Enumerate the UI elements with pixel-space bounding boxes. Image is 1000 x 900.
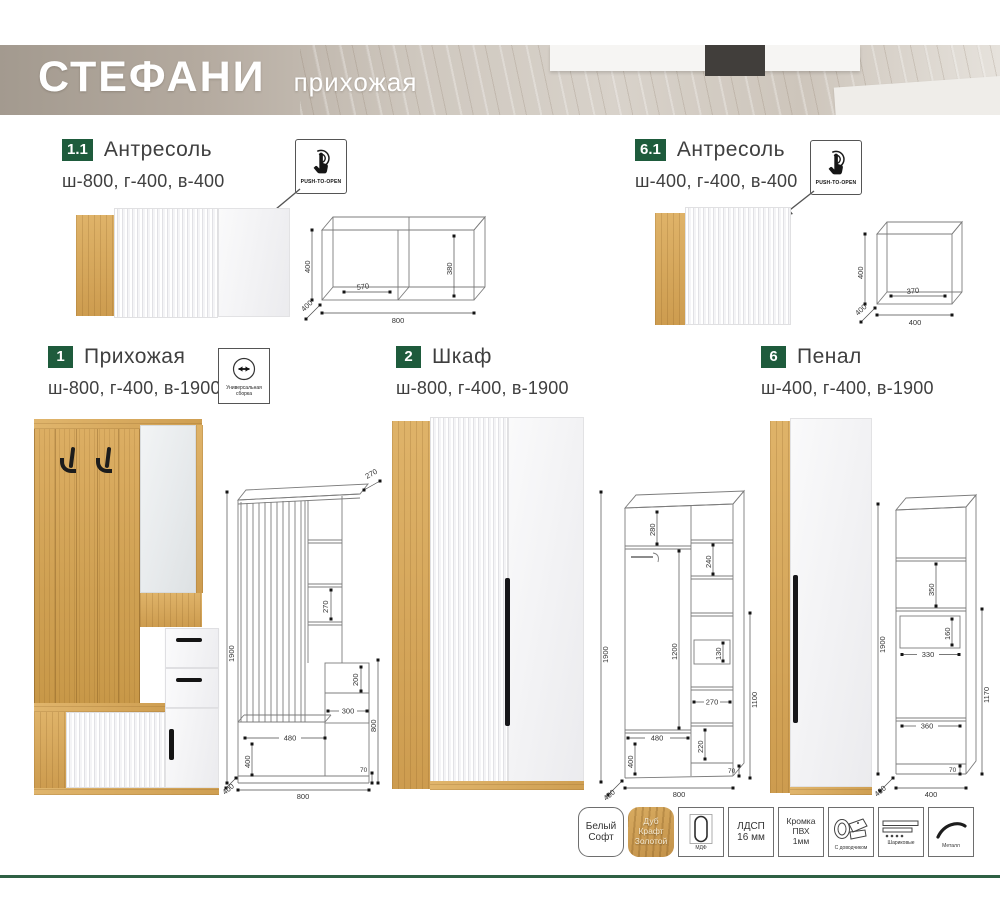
push-to-open-box-6-1: PUSH-TO-OPEN [810, 140, 862, 195]
dim-drawer-height: 160 [943, 627, 952, 640]
dim-shelf-width: 360 [921, 722, 934, 731]
item-6-dims: ш-400, г-400, в-1900 [761, 378, 934, 399]
dim-total-height: 1900 [601, 646, 610, 663]
material-label: Металл [942, 844, 960, 849]
dimensions: 400 380 570 800 400 [299, 229, 475, 326]
outline [322, 217, 485, 300]
dim-plinth: 70 [728, 768, 736, 775]
coat-hook [94, 447, 114, 473]
material-metal-handles: Металл [928, 807, 974, 857]
door-handle [169, 729, 174, 760]
mirror [140, 425, 196, 593]
bench-top [34, 703, 165, 712]
universal-assembly-box: Универсальная сборка [218, 348, 270, 404]
item-1-1-badge: 1.1 [62, 139, 93, 161]
fluted-door [430, 417, 508, 784]
item-2-dims: ш-800, г-400, в-1900 [396, 378, 569, 399]
dim-width: 800 [673, 790, 686, 799]
mdf-profile-icon [688, 813, 714, 845]
drawer-handle [176, 678, 202, 682]
dim-drawer-height: 200 [351, 673, 360, 686]
dimensions: 1900 350 160 330 1170 360 70 400 400 [873, 503, 991, 800]
dim-inner-height: 380 [445, 262, 454, 275]
dim-bench-height: 400 [243, 755, 252, 768]
double-arrow-icon [229, 355, 259, 385]
wardrobe-drawing: 1900 280 1200 240 130 270 220 400 480 [595, 468, 767, 808]
antresol-800-drawing: 400 380 570 800 400 [302, 200, 492, 330]
item-1-label: 1 Прихожая ш-800, г-400, в-1900 [48, 345, 221, 399]
dim-width: 400 [909, 318, 922, 327]
catalog-page: СТЕФАНИ прихожая 1.1 Антресоль ш-800, г-… [0, 0, 1000, 900]
drawer [165, 668, 219, 708]
door-handle [793, 575, 798, 723]
page-title: СТЕФАНИ прихожая [38, 53, 417, 102]
hook-panel [34, 429, 140, 703]
material-label: Белый Софт [586, 821, 616, 844]
item-6-1-badge: 6.1 [635, 139, 666, 161]
dim-height: 400 [303, 260, 312, 273]
open-niche [140, 593, 202, 627]
material-label: Дуб Крафт Золотой [635, 817, 668, 846]
dim-total-height: 1900 [878, 636, 887, 653]
hinge-icon [831, 813, 871, 845]
dimensions: 400 370 400 400 [853, 233, 953, 328]
material-label: С доводчиком [835, 846, 868, 851]
material-label: ЛДСП 16 мм [737, 821, 765, 844]
push-to-open-label: PUSH-TO-OPEN [816, 180, 857, 186]
materials-row: Белый Софт Дуб Крафт Золотой МДФ ЛДСП 16… [578, 807, 974, 857]
bench-side [34, 712, 66, 788]
material-label: Кромка ПВХ 1мм [787, 817, 816, 846]
dim-hanging-height: 1200 [670, 643, 679, 660]
plinth [430, 781, 584, 790]
dim-right-height: 800 [369, 719, 378, 732]
door-handle [505, 578, 510, 726]
plinth [790, 787, 872, 795]
material-ball-slides: Шариковые [878, 807, 924, 857]
material-edge-pvc: Кромка ПВХ 1мм [778, 807, 824, 857]
plain-door [790, 418, 872, 787]
dim-drawer-width: 330 [922, 650, 935, 659]
push-to-open-icon [306, 148, 336, 178]
material-label: Шариковые [888, 841, 915, 846]
hallway-drawing: 1900 270 270 200 300 480 400 800 70 [222, 470, 388, 805]
dim-shelf-gap: 240 [704, 555, 713, 568]
dim-drawer-width: 300 [342, 707, 355, 716]
dim-top-depth: 270 [364, 467, 379, 481]
dim-height: 400 [856, 266, 865, 279]
item-2-name: Шкаф [432, 345, 492, 369]
material-mdf: МДФ [678, 807, 724, 857]
push-to-open-label: PUSH-TO-OPEN [301, 179, 342, 185]
dim-left-height: 400 [626, 755, 635, 768]
tall-cabinet-render [770, 415, 874, 799]
wood-side-panel [76, 215, 114, 316]
item-1-1-dims: ш-800, г-400, в-400 [62, 171, 224, 192]
item-1-1-label: 1.1 Антресоль ш-800, г-400, в-400 [62, 138, 224, 192]
dim-inner-width: 570 [356, 281, 370, 292]
bottom-door [165, 708, 219, 788]
antresol-400-render [655, 203, 791, 331]
item-6-1-name: Антресоль [677, 138, 785, 162]
material-label: МДФ [695, 846, 706, 851]
dim-width: 800 [392, 316, 405, 325]
dim-width: 400 [925, 790, 938, 799]
wood-edge [196, 425, 203, 593]
wardrobe-render [390, 413, 594, 792]
wood-side-panel [770, 421, 790, 793]
item-1-dims: ш-800, г-400, в-1900 [48, 378, 221, 399]
dim-inner-width: 370 [906, 286, 919, 296]
bottom-divider-line [0, 875, 1000, 878]
fluted-door [114, 208, 218, 318]
outline [896, 495, 976, 774]
item-2-badge: 2 [396, 346, 421, 368]
dim-shelf-width: 270 [706, 698, 719, 707]
outline [625, 491, 744, 778]
material-hinges: С доводчиком [828, 807, 874, 857]
wood-side-panel [392, 421, 430, 789]
item-1-name: Прихожая [84, 345, 185, 369]
dim-right-height: 1100 [750, 692, 759, 708]
dim-plinth: 70 [360, 767, 368, 774]
material-ldsp: ЛДСП 16 мм [728, 807, 774, 857]
drawer [165, 628, 219, 668]
tall-cabinet-drawing: 1900 350 160 330 1170 360 70 400 400 [872, 468, 998, 808]
series-title: СТЕФАНИ [38, 53, 266, 102]
item-1-badge: 1 [48, 346, 73, 368]
dimensions: 1900 280 1200 240 130 270 220 400 480 [600, 491, 760, 803]
wood-side-panel [655, 213, 685, 325]
dim-bottom-width: 480 [651, 734, 664, 743]
item-6-badge: 6 [761, 346, 786, 368]
antresol-400-drawing: 400 370 400 400 [845, 198, 985, 338]
material-white-soft: Белый Софт [578, 807, 624, 857]
dim-top-gap: 280 [648, 523, 657, 536]
drawer-handle [176, 638, 202, 642]
dim-bottom-gap: 220 [696, 740, 705, 753]
dim-depth: 400 [221, 782, 236, 797]
drawer-slide-icon [881, 818, 921, 840]
universal-assembly-label: Универсальная сборка [226, 386, 262, 397]
dim-total-height: 1900 [227, 645, 236, 662]
push-to-open-icon [821, 149, 851, 179]
item-6-name: Пенал [797, 345, 862, 369]
dim-drawer-height: 130 [714, 647, 723, 660]
antresol-800-render [76, 203, 290, 320]
bench-front [66, 712, 165, 788]
item-6-1-label: 6.1 Антресоль ш-400, г-400, в-400 [635, 138, 797, 192]
plinth [34, 788, 219, 795]
dim-plinth: 70 [949, 767, 957, 774]
series-subtitle: прихожая [294, 67, 418, 98]
fluted-door [685, 207, 791, 325]
dim-bench-width: 480 [284, 734, 297, 743]
item-6-label: 6 Пенал ш-400, г-400, в-1900 [761, 345, 934, 399]
dim-shelf-gap: 350 [927, 583, 936, 596]
plain-door [508, 417, 584, 784]
hallway-render [32, 415, 222, 796]
outline [877, 222, 962, 304]
coat-hook [58, 447, 78, 473]
dim-right-height: 1170 [982, 687, 991, 703]
dim-depth: 400 [602, 788, 617, 803]
item-2-label: 2 Шкаф ш-800, г-400, в-1900 [396, 345, 569, 399]
dim-shelf-gap: 270 [321, 600, 330, 613]
plain-door [218, 208, 290, 317]
banner-dark-shape [705, 45, 765, 76]
dim-width: 800 [297, 792, 310, 801]
header-banner: СТЕФАНИ прихожая [0, 45, 1000, 115]
material-oak-craft-gold: Дуб Крафт Золотой [628, 807, 674, 857]
handle-icon [931, 815, 971, 843]
item-1-1-name: Антресоль [104, 138, 212, 162]
